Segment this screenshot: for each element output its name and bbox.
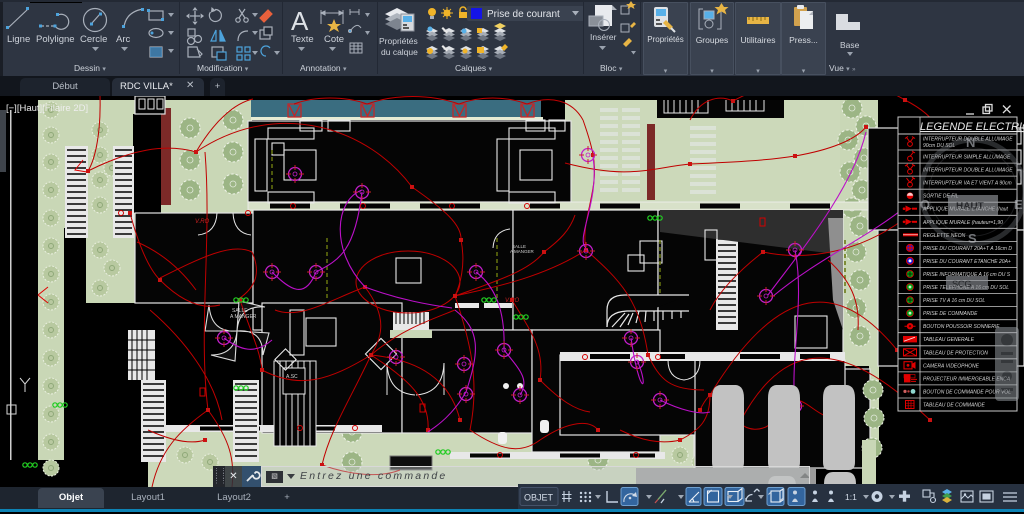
- svg-text:Arc: Arc: [116, 34, 131, 45]
- svg-text:TABLEAU GENERALE: TABLEAU GENERALE: [923, 337, 975, 343]
- svg-text:Base: Base: [840, 40, 860, 50]
- svg-text:OBJET: OBJET: [524, 493, 554, 503]
- svg-text:SCG: SCG: [952, 279, 972, 289]
- svg-text:O: O: [920, 197, 930, 212]
- svg-text:A: A: [291, 6, 309, 36]
- svg-text:BOUTON POUSSOIR SONNERIE: BOUTON POUSSOIR SONNERIE: [923, 324, 1000, 330]
- svg-text:INTERRUPTEUR DOUBLE ALLUMAGE: INTERRUPTEUR DOUBLE ALLUMAGE: [923, 168, 1013, 174]
- svg-text:N: N: [966, 135, 975, 150]
- svg-text:INTERRUPTEUR VA ET VIENT A 90c: INTERRUPTEUR VA ET VIENT A 90cm: [923, 181, 1012, 187]
- svg-text:1:1: 1:1: [845, 492, 857, 502]
- svg-text:PRISE DU COURANT 20A+T A 16cm: PRISE DU COURANT 20A+T A 16cm D: [923, 246, 1012, 252]
- svg-text:LEGENDE ELECTRIC: LEGENDE ELECTRIC: [920, 121, 1024, 133]
- svg-text:Ligne: Ligne: [7, 34, 30, 45]
- svg-text:TABLEAU DE COMMANDE: TABLEAU DE COMMANDE: [923, 403, 986, 409]
- svg-text:E: E: [1014, 197, 1023, 212]
- svg-text:Polyligne: Polyligne: [36, 34, 75, 45]
- svg-text:S: S: [968, 231, 977, 246]
- svg-text:V.RO: V.RO: [505, 298, 520, 304]
- svg-text:PRISE DU COURANT ETANCHE 20A+: PRISE DU COURANT ETANCHE 20A+: [923, 259, 1011, 265]
- svg-text:Cote: Cote: [324, 34, 344, 45]
- svg-text:Insérer: Insérer: [590, 32, 617, 42]
- svg-text:V.RO: V.RO: [195, 219, 210, 225]
- svg-text:PRISE DE COMMANDE: PRISE DE COMMANDE: [923, 311, 978, 317]
- svg-text:A MANGER: A MANGER: [230, 314, 257, 320]
- svg-text:HAUT: HAUT: [956, 201, 984, 212]
- svg-text:Cercle: Cercle: [80, 34, 107, 45]
- svg-text:PRISE TV A 16 cm DU SOL: PRISE TV A 16 cm DU SOL: [923, 298, 985, 304]
- svg-text:CAMERA VIDEOPHONE: CAMERA VIDEOPHONE: [923, 363, 980, 369]
- svg-text:Texte: Texte: [291, 34, 314, 45]
- svg-text:TABLEAU DE PROTECTION: TABLEAU DE PROTECTION: [923, 350, 988, 356]
- svg-text:A MANGER: A MANGER: [510, 249, 535, 254]
- svg-text:[−][Haut][Filaire 2D]: [−][Haut][Filaire 2D]: [6, 103, 88, 114]
